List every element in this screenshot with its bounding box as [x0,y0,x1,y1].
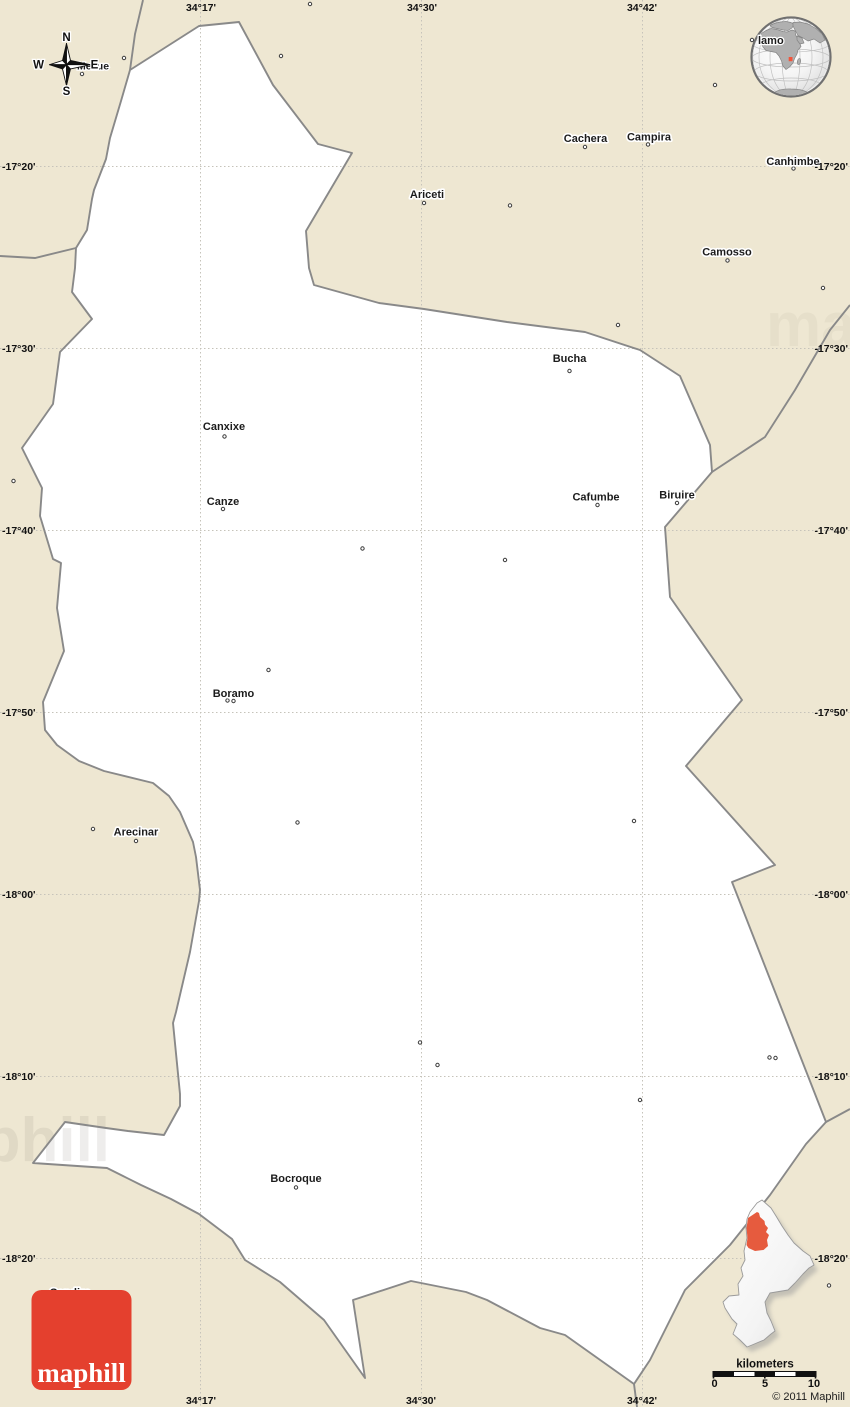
svg-text:-17°50': -17°50' [814,707,848,719]
svg-text:-17°40': -17°40' [2,525,36,537]
svg-text:34°30': 34°30' [406,1395,436,1407]
svg-text:Cachera: Cachera [564,133,608,145]
svg-text:34°42': 34°42' [627,2,657,14]
svg-text:lamo: lamo [758,35,784,47]
svg-text:Biruire: Biruire [659,490,694,502]
svg-text:5: 5 [762,1378,768,1390]
svg-text:Bucha: Bucha [553,353,588,365]
svg-text:-17°50': -17°50' [2,707,36,719]
svg-text:34°17': 34°17' [186,1395,216,1407]
svg-text:Arecinar: Arecinar [114,827,159,839]
svg-text:Canxixe: Canxixe [203,421,245,433]
svg-text:Ariceti: Ariceti [410,189,444,201]
svg-text:-18°00': -18°00' [814,889,848,901]
svg-text:0: 0 [711,1378,717,1390]
svg-text:W: W [33,60,44,72]
svg-text:N: N [62,32,70,44]
svg-text:Canhimbe: Canhimbe [766,156,819,168]
svg-text:-17°20': -17°20' [814,161,848,173]
svg-text:34°17': 34°17' [186,2,216,14]
svg-text:-18°00': -18°00' [2,889,36,901]
svg-text:-17°30': -17°30' [2,343,36,355]
svg-text:kilometers: kilometers [736,1359,794,1371]
svg-text:Bocroque: Bocroque [270,1173,321,1185]
svg-text:-18°10': -18°10' [814,1071,848,1083]
svg-text:34°42': 34°42' [627,1395,657,1407]
svg-text:Boramo: Boramo [213,688,255,700]
svg-text:-17°20': -17°20' [2,161,36,173]
svg-text:-18°20': -18°20' [2,1253,36,1265]
svg-text:-18°10': -18°10' [2,1071,36,1083]
svg-text:E: E [91,60,99,72]
svg-text:10: 10 [808,1378,820,1390]
svg-text:Camosso: Camosso [702,247,752,259]
svg-text:Cafumbe: Cafumbe [572,492,619,504]
svg-text:S: S [63,86,71,98]
svg-text:-18°20': -18°20' [814,1253,848,1265]
svg-text:© 2011 Maphill: © 2011 Maphill [772,1391,845,1403]
svg-text:34°30': 34°30' [407,2,437,14]
svg-text:-17°40': -17°40' [814,525,848,537]
svg-text:-17°30': -17°30' [814,343,848,355]
svg-text:Canze: Canze [207,496,239,508]
svg-text:Campira: Campira [627,132,672,144]
svg-text:maphill: maphill [37,1358,126,1388]
